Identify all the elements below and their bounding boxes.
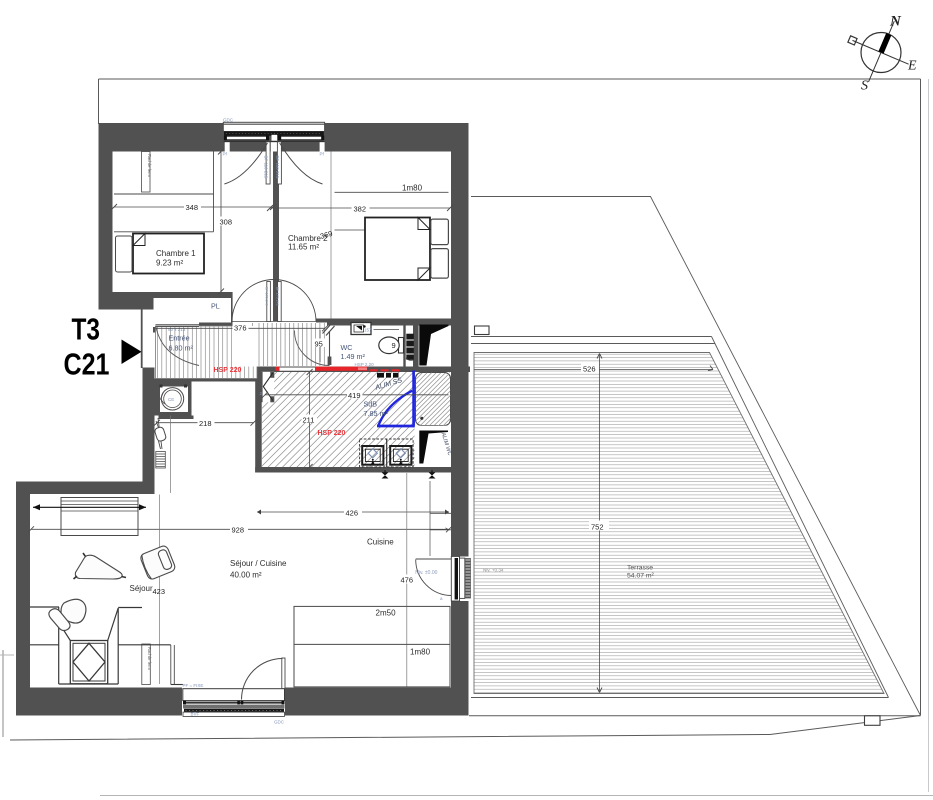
svg-text:HSP 2.20: HSP 2.20 — [355, 362, 375, 367]
svg-text:1.49 m²: 1.49 m² — [341, 352, 366, 361]
svg-text:11.65 m²: 11.65 m² — [288, 243, 319, 252]
svg-text:CE: CE — [168, 397, 174, 402]
svg-text:54.07 m²: 54.07 m² — [627, 573, 655, 580]
svg-text:C21: C21 — [64, 347, 110, 382]
svg-text:928: 928 — [232, 526, 245, 535]
svg-text:308: 308 — [220, 218, 233, 227]
svg-text:Cuisine: Cuisine — [367, 538, 394, 547]
svg-text:T3: T3 — [72, 312, 101, 347]
svg-text:BVF: BVF — [191, 712, 200, 717]
svg-text:Niv. +0.34: Niv. +0.34 — [483, 568, 504, 573]
svg-text:Séjour / Cuisine: Séjour / Cuisine — [230, 559, 287, 568]
svg-text:S: S — [861, 79, 868, 94]
svg-text:Pf: Pf — [320, 152, 325, 157]
svg-text:SdB: SdB — [364, 400, 378, 409]
svg-text:382: 382 — [354, 205, 367, 214]
svg-text:WC: WC — [341, 343, 353, 352]
svg-text:752: 752 — [591, 523, 604, 532]
svg-text:Niv. ±0.00: Niv. ±0.00 — [415, 570, 437, 576]
svg-text:526: 526 — [583, 365, 596, 374]
svg-text:Pf: Pf — [223, 152, 228, 157]
svg-text:BF 110 215: BF 110 215 — [264, 156, 269, 179]
svg-text:Rad de ferm: Rad de ferm — [147, 647, 152, 671]
svg-text:1m80: 1m80 — [402, 184, 423, 193]
svg-text:9.23 m²: 9.23 m² — [156, 259, 183, 268]
svg-text:211: 211 — [303, 415, 315, 424]
svg-text:Terrasse: Terrasse — [627, 565, 653, 572]
svg-text:476: 476 — [401, 576, 414, 585]
svg-text:PL: PL — [211, 302, 220, 311]
svg-text:Entrée: Entrée — [169, 334, 190, 343]
svg-text:BF 110 215: BF 110 215 — [275, 156, 280, 179]
svg-text:GDC: GDC — [274, 720, 285, 725]
svg-text:376: 376 — [234, 324, 247, 333]
svg-text:423: 423 — [153, 587, 166, 596]
svg-text:1m80: 1m80 — [410, 648, 431, 657]
svg-text:419: 419 — [348, 391, 361, 400]
svg-text:HSP 220: HSP 220 — [318, 430, 346, 437]
svg-text:E: E — [907, 59, 917, 74]
svg-text:Séjour: Séjour — [130, 584, 153, 593]
svg-text:HSP 220: HSP 220 — [214, 367, 242, 374]
svg-text:6.80 m²: 6.80 m² — [169, 344, 194, 353]
svg-text:7.85 m²: 7.85 m² — [364, 409, 389, 418]
svg-text:Chambre 1: Chambre 1 — [156, 249, 196, 258]
svg-text:90 x 213: 90 x 213 — [168, 327, 186, 332]
svg-text:N: N — [889, 14, 902, 30]
svg-text:9: 9 — [392, 341, 396, 350]
svg-text:95: 95 — [315, 340, 323, 349]
svg-text:157: 157 — [364, 328, 372, 333]
svg-text:348: 348 — [186, 203, 199, 212]
svg-text:218: 218 — [199, 419, 212, 428]
svg-text:426: 426 — [346, 509, 359, 518]
svg-text:BF 170 243: BF 170 243 — [265, 287, 269, 306]
svg-text:Rad de ferm: Rad de ferm — [147, 154, 152, 178]
svg-text:2m50: 2m50 — [376, 609, 397, 618]
svg-text:40.00 m²: 40.00 m² — [230, 571, 262, 580]
svg-text:PF = FIXE: PF = FIXE — [183, 683, 204, 688]
svg-text:GDC: GDC — [223, 118, 234, 123]
svg-text:BF 170 243: BF 170 243 — [275, 287, 279, 306]
